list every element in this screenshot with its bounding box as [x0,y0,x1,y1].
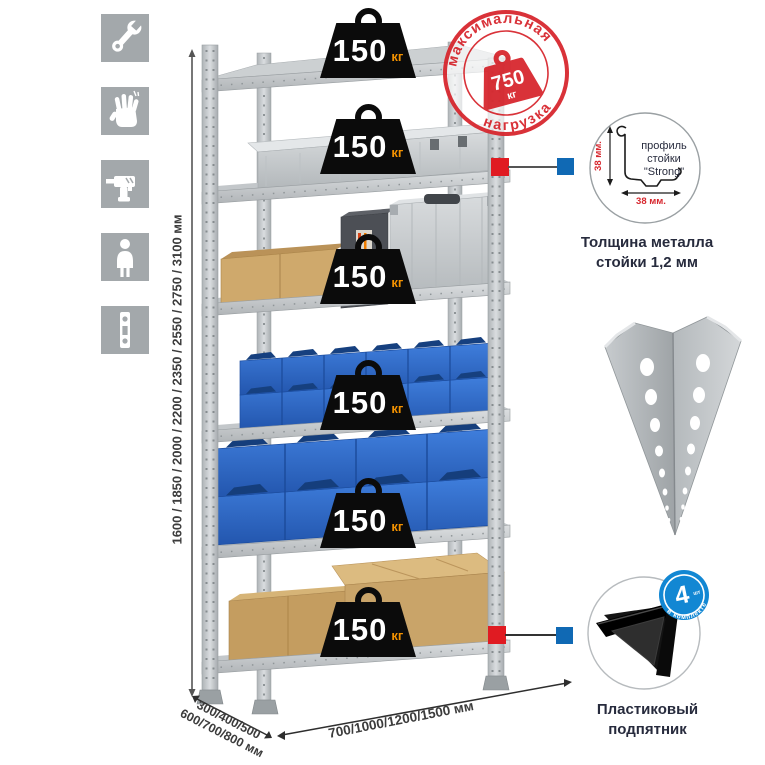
load-badge-shelf-3: 150кг [320,234,416,304]
profile-dim-vertical: 38 мм. [593,141,604,171]
load-value: 150 [333,129,388,165]
sidebar-tile-drill [101,160,149,208]
quantity-badge: 4 шт в комплекте [656,567,712,623]
load-unit: кг [391,519,403,534]
height-dimension-label: 1600 / 1850 / 2000 / 2200 / 2350 / 2550 … [170,180,185,580]
callout-marker-blue-bottom [556,627,573,644]
load-unit: кг [391,49,403,64]
load-badge-shelf-4: 150кг [320,360,416,430]
person-icon [101,233,149,281]
load-badge-shelf-6: 150кг [320,587,416,657]
max-load-stamp: максимальная нагрузка 750 кг [441,8,571,138]
callout-marker-blue-top [557,158,574,175]
level-icon [101,306,149,354]
callout-line-bottom [505,634,556,636]
drill-icon [101,160,149,208]
wrench-icon [101,14,149,62]
foot-caption-line-1: Пластиковый [570,700,725,720]
load-value: 150 [333,503,388,539]
profile-label-3: "Strong" [644,166,684,178]
perforated-corner-post-image [595,305,755,540]
product-infographic: 1600 / 1850 / 2000 / 2200 / 2350 / 2550 … [0,0,765,765]
foot-caption-line-2: подпятник [570,720,725,740]
load-badge-shelf-5: 150кг [320,478,416,548]
load-unit: кг [391,275,403,290]
load-unit: кг [391,628,403,643]
callout-marker-red-top [491,158,509,176]
gloves-icon [101,87,149,135]
profile-label-1: профиль [641,140,687,152]
load-badge-shelf-2: 150кг [320,104,416,174]
sidebar-tile-assembly [101,14,149,62]
load-value: 150 [333,259,388,295]
foot-caption: Пластиковый подпятник [570,700,725,740]
load-unit: кг [391,401,403,416]
profile-caption-line-1: Толщина металла [567,233,727,253]
sidebar-tile-level [101,306,149,354]
callout-marker-red-bottom [488,626,506,644]
sidebar-tile-gloves [101,87,149,135]
profile-caption-line-2: стойки 1,2 мм [567,253,727,273]
profile-dim-horizontal: 38 мм. [636,196,666,207]
post-profile-detail: 38 мм. 38 мм. профиль стойки "Strong" [589,112,701,224]
sidebar-tile-person [101,233,149,281]
profile-caption: Толщина металла стойки 1,2 мм [567,233,727,273]
load-value: 150 [333,33,388,69]
callout-line-top [508,166,557,168]
load-unit: кг [391,145,403,160]
load-badge-shelf-1: 150кг [320,8,416,78]
load-value: 150 [333,385,388,421]
profile-label-2: стойки [647,153,681,165]
load-value: 150 [333,612,388,648]
